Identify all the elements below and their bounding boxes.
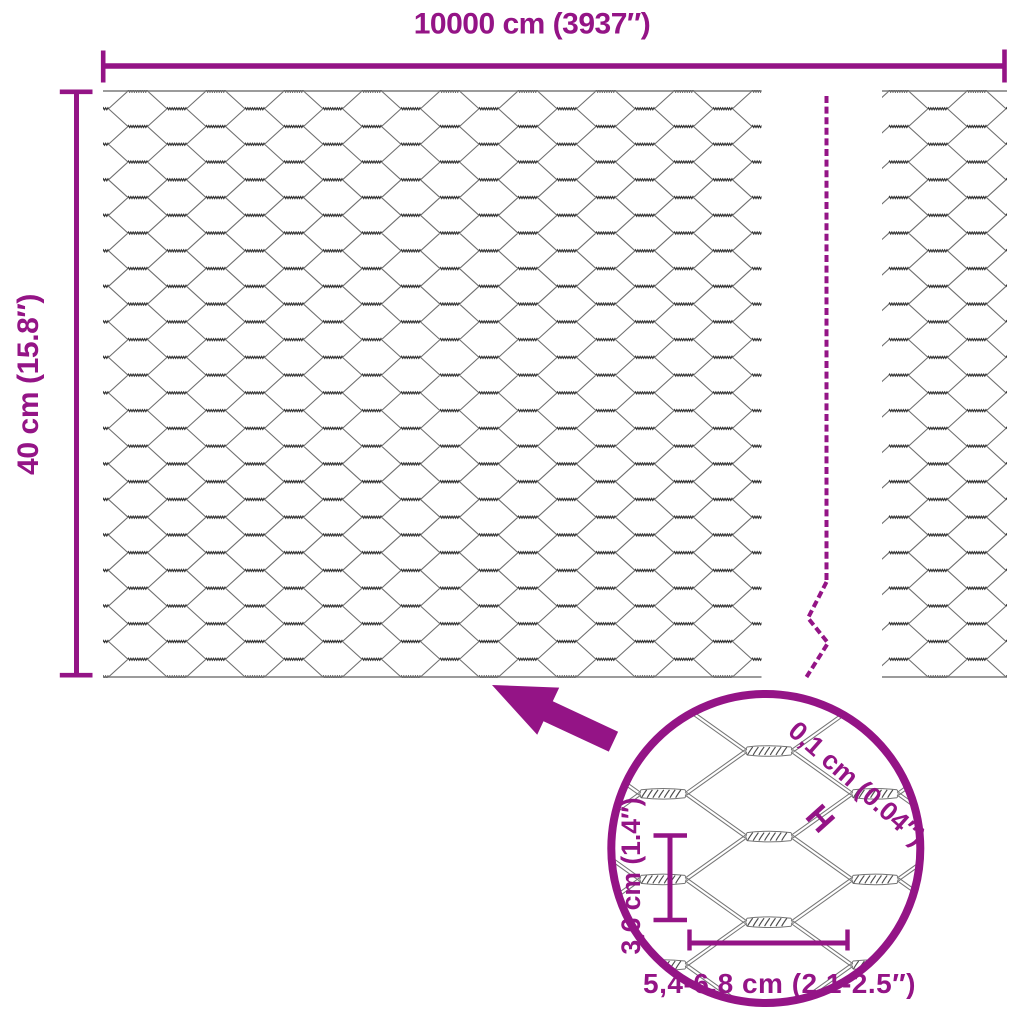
svg-text:10000 cm (3937″): 10000 cm (3937″) [414,8,651,41]
svg-text:3,6 cm (1.4″): 3,6 cm (1.4″) [616,797,646,954]
svg-text:40 cm (15.8″): 40 cm (15.8″) [12,294,45,475]
svg-text:5,4-6,8 cm (2.1-2.5″): 5,4-6,8 cm (2.1-2.5″) [643,968,916,999]
